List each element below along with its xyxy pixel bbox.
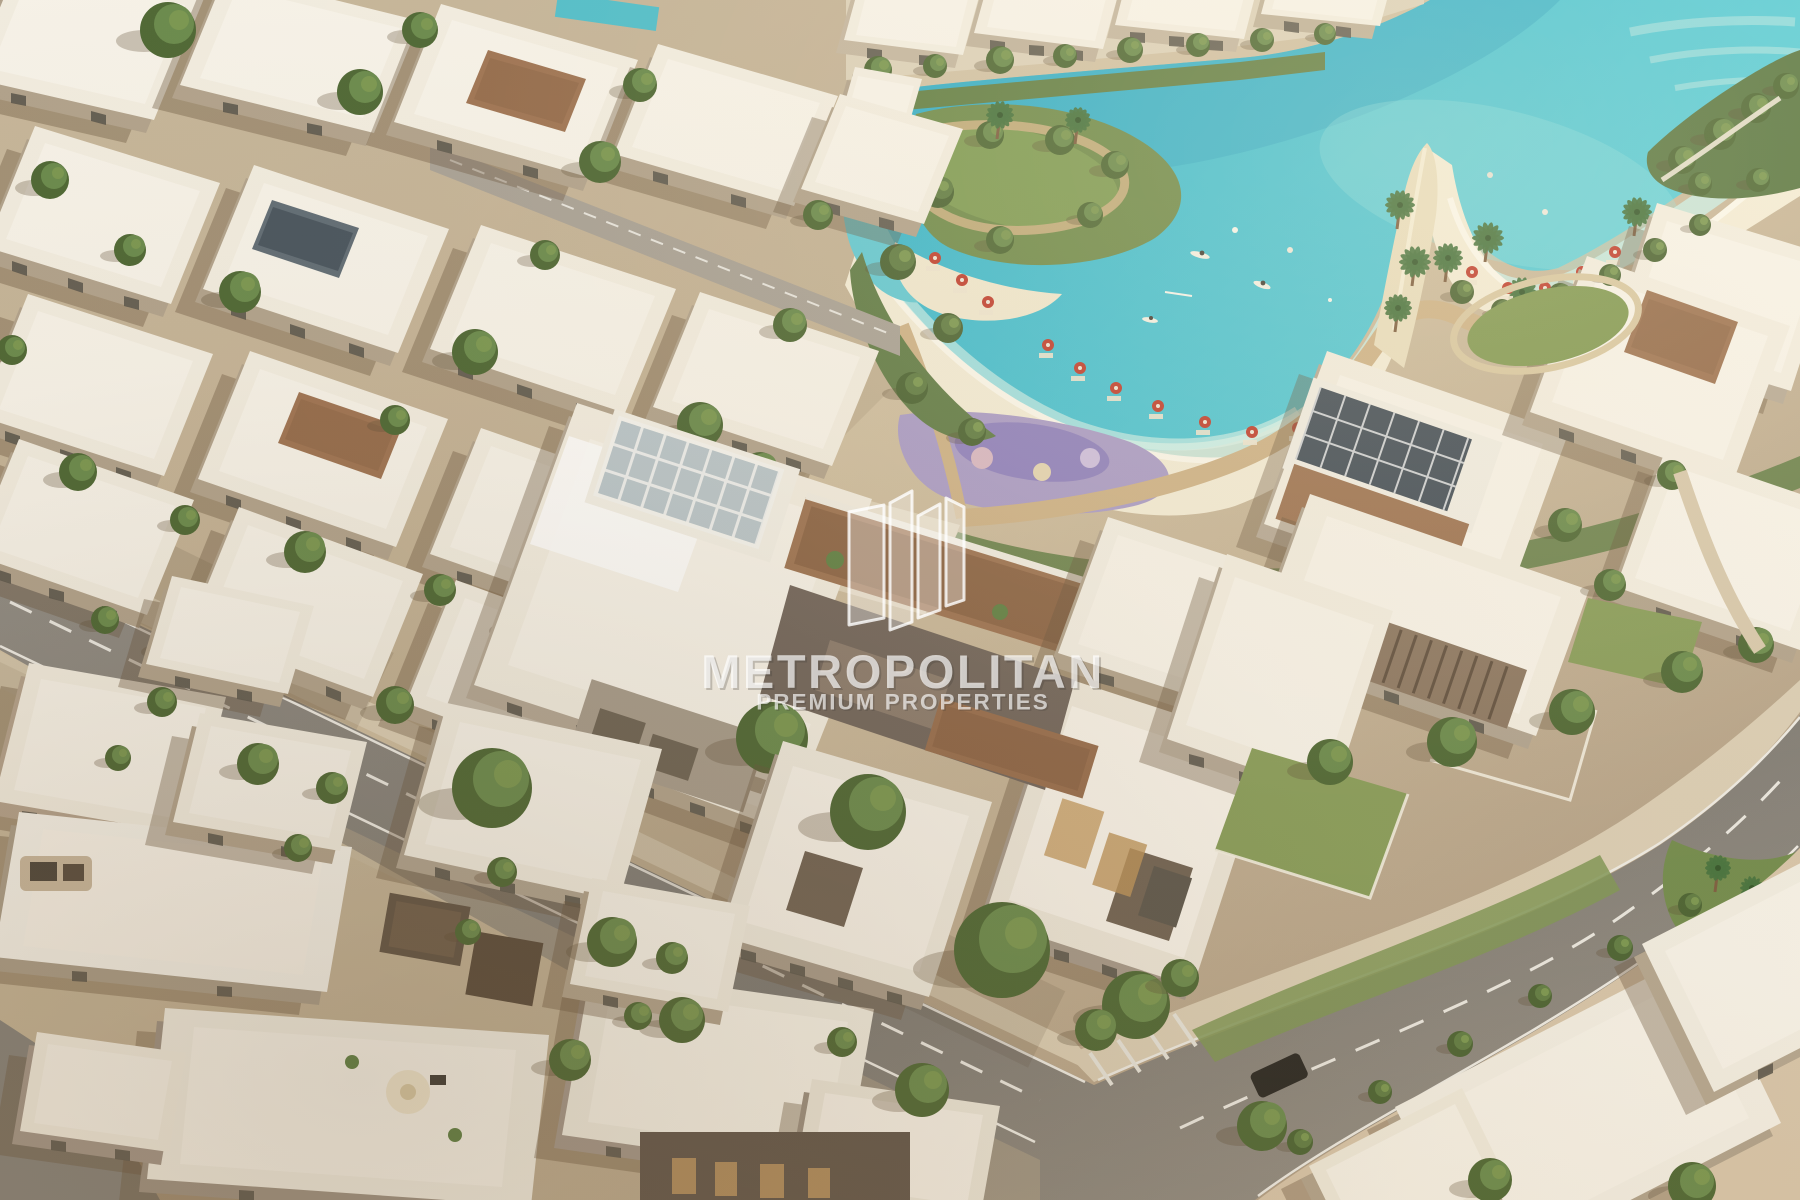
svg-text:PREMIUM PROPERTIES: PREMIUM PROPERTIES (756, 690, 1050, 715)
